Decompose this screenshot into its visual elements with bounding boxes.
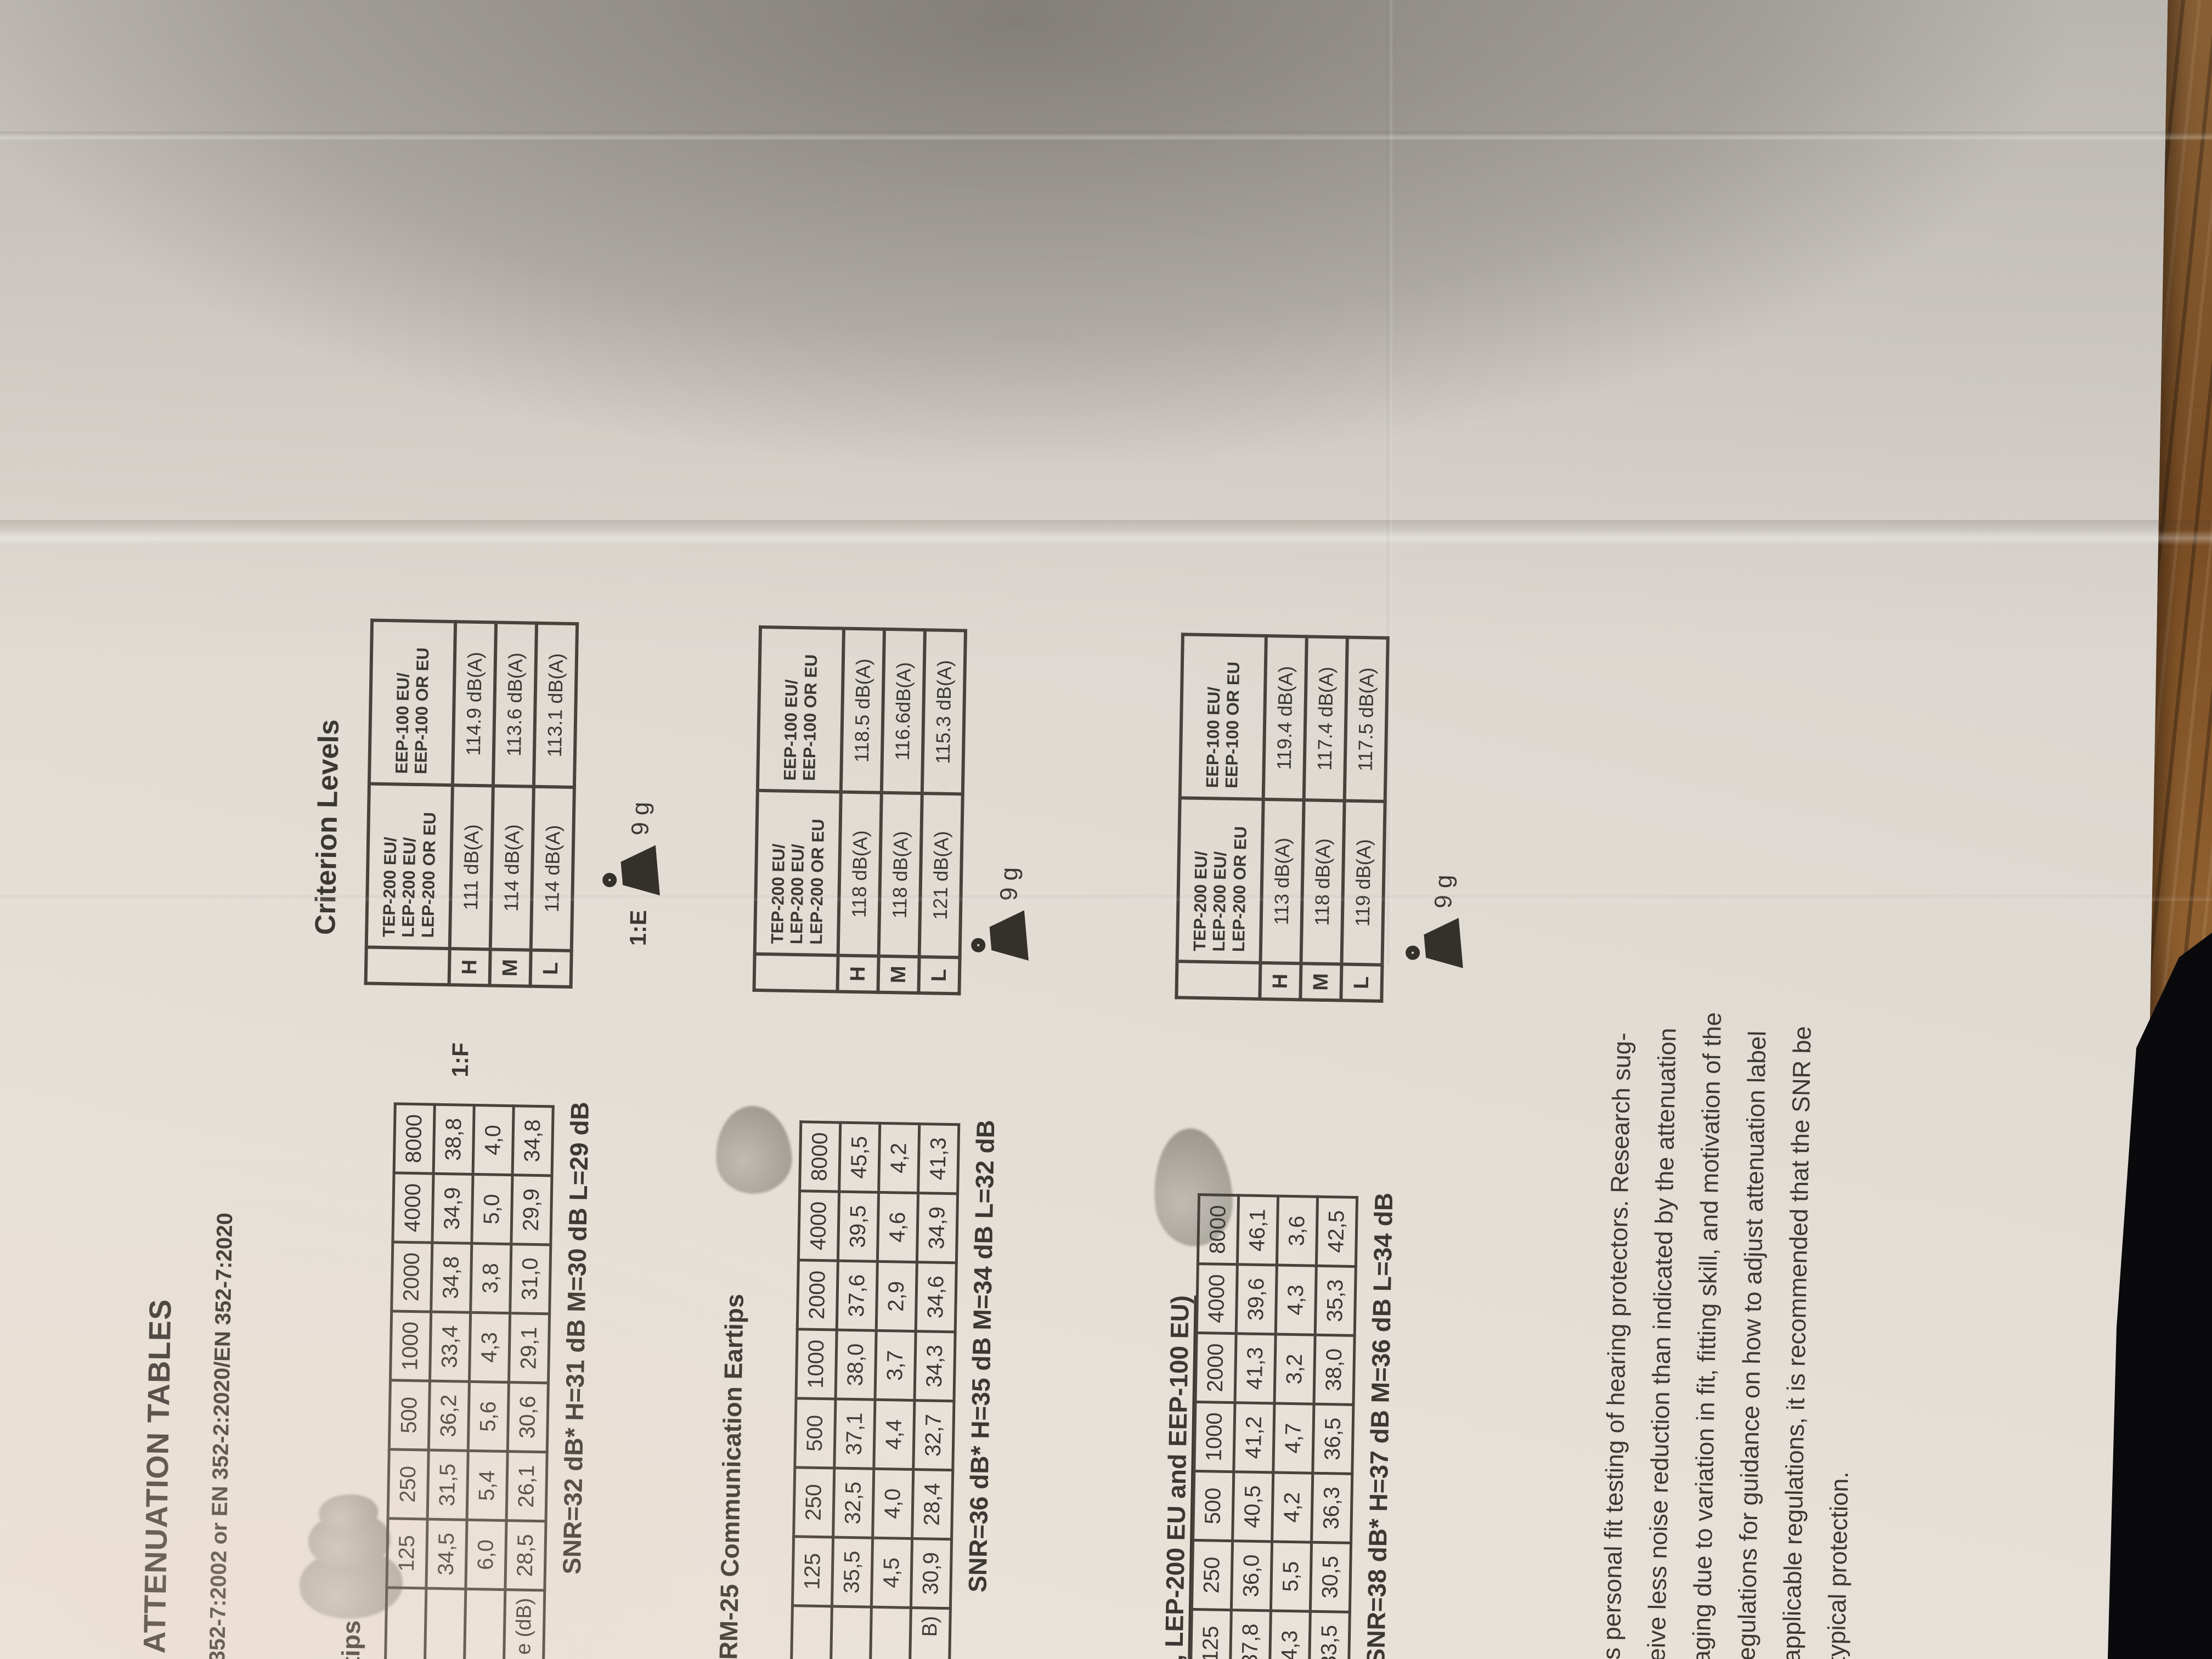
rotated-document-page: ATTENUATION TABLES 352-7:2002 or EN 352-… (0, 0, 2212, 1659)
weight-row-3: 9 g (1404, 874, 1462, 971)
frequency-header-cell: 250 (1192, 1540, 1232, 1610)
attenuation-value-cell: 40,5 (1233, 1472, 1273, 1542)
section2-title: GRM-25 Communication Eartips (713, 1294, 749, 1659)
attenuation-value-cell: 26,1 (506, 1452, 547, 1521)
attenuation-value-cell: 32,5 (833, 1468, 874, 1538)
attenuation-value-cell: 4,2 (879, 1123, 919, 1193)
weight-row-2: 9 g (970, 867, 1028, 964)
criterion-column-header: TEP-200 EU/ LEP-200 EU/ LEP-200 OR EU (755, 791, 841, 956)
attenuation-value-cell: 4,3 (469, 1312, 510, 1382)
figure-label-1F: 1:F (447, 1042, 474, 1077)
attenuation-value-cell: 34,9 (917, 1193, 957, 1263)
weight-body (988, 910, 1029, 963)
attenuation-value-cell: 4,5 (871, 1538, 912, 1607)
criterion-row-label: L (1341, 964, 1382, 1001)
attenuation-value-cell: 33,5 (1309, 1611, 1350, 1659)
attenuation-value-cell: 35,3 (1315, 1266, 1356, 1335)
attenuation-value-cell: 5,5 (1271, 1542, 1311, 1611)
attenuation-value-cell: 30,6 (507, 1383, 548, 1452)
frequency-header-cell: 4000 (1197, 1263, 1237, 1333)
attenuation-value-cell: 3,7 (875, 1330, 916, 1400)
criterion-row-label: H (1260, 963, 1301, 1000)
attenuation-value-cell: 30,9 (911, 1538, 951, 1608)
attenuation-value-cell: 29,9 (511, 1175, 552, 1245)
figure-label-1E: 1:E (625, 910, 657, 946)
weight-body (1423, 918, 1463, 971)
criterion-table-3: TEP-200 EU/ LEP-200 EU/ LEP-200 OR EUEEP… (1175, 633, 1390, 1003)
attenuation-row-label-cell (385, 1588, 426, 1659)
attenuation-row-label-cell: e (dB) (503, 1590, 544, 1659)
criterion-corner-cell (1176, 961, 1260, 999)
criterion-row-label: L (918, 957, 960, 994)
criterion-table-2: TEP-200 EU/ LEP-200 EU/ LEP-200 OR EUEEP… (752, 625, 967, 996)
attenuation-value-cell: 6,0 (466, 1520, 506, 1589)
attenuation-value-cell: 45,5 (839, 1122, 880, 1192)
criterion-value-cell: 117.4 dB(A) (1304, 636, 1347, 800)
criterion-table-1: TEP-200 EU/ LEP-200 EU/ LEP-200 OR EUEEP… (364, 618, 579, 989)
attenuation-row-label-cell (830, 1606, 871, 1659)
attenuation-value-cell: 34,9 (432, 1173, 473, 1243)
attenuation-value-cell: 4,0 (873, 1469, 913, 1538)
body-paragraph: nds personal fit testing of hearing prot… (1589, 425, 1881, 1659)
frequency-header-cell: 500 (1193, 1471, 1234, 1541)
criterion-row-label: H (837, 955, 878, 992)
frequency-header-cell: 8000 (394, 1104, 435, 1173)
frequency-header-cell: 8000 (1198, 1195, 1238, 1265)
attenuation-value-cell: 38,8 (433, 1104, 474, 1174)
attenuation-value-cell: 41,3 (1235, 1334, 1276, 1403)
attenuation-value-cell: 36,2 (428, 1381, 469, 1451)
frequency-header-cell: 2000 (1195, 1333, 1236, 1402)
page-title: ATTENUATION TABLES (136, 1299, 178, 1654)
weight-icon (600, 845, 660, 900)
attenuation-value-cell: 42,5 (1316, 1197, 1357, 1266)
frequency-header-cell: 1000 (796, 1329, 837, 1399)
weight-handle-ring (1405, 945, 1420, 961)
attenuation-value-cell: 32,7 (913, 1401, 954, 1470)
weight-handle-ring (602, 872, 617, 888)
attenuation-value-cell: 3,8 (471, 1243, 511, 1313)
attenuation-value-cell: 5,6 (468, 1381, 509, 1451)
attenuation-row-label-cell (424, 1588, 465, 1659)
criterion-value-cell: 111 dB(A) (450, 785, 493, 949)
attenuation-value-cell: 41,3 (918, 1124, 959, 1194)
criterion-value-cell: 118 dB(A) (1301, 800, 1344, 964)
weight-icon (968, 910, 1029, 966)
paper-crease (1387, 0, 1392, 966)
attenuation-row-label-cell (464, 1589, 505, 1659)
criterion-value-cell: 119.4 dB(A) (1263, 636, 1307, 800)
criterion-column-header: TEP-200 EU/ LEP-200 EU/ LEP-200 OR EU (1177, 798, 1263, 963)
criterion-value-cell: 115.3 dB(A) (922, 630, 966, 794)
attenuation-value-cell: 35,5 (832, 1537, 872, 1607)
attenuation-value-cell: 34,8 (431, 1243, 472, 1312)
attenuation-table-2: 125250500100020004000800035,532,537,138,… (789, 1120, 960, 1659)
attenuation-value-cell: 46,1 (1237, 1195, 1278, 1265)
criterion-value-cell: 118 dB(A) (838, 792, 882, 956)
criterion-value-cell: 119 dB(A) (1341, 801, 1385, 965)
paper-crease (0, 895, 2212, 901)
attenuation-value-cell: 4,2 (1272, 1472, 1313, 1542)
frequency-header-cell: 250 (794, 1468, 834, 1537)
frequency-header-cell: 125 (792, 1537, 833, 1606)
attenuation-row-label-cell (870, 1607, 911, 1659)
criterion-value-cell: 116.6dB(A) (882, 629, 925, 793)
attenuation-value-cell: 30,5 (1310, 1542, 1351, 1612)
weight-icon (1403, 918, 1463, 973)
frequency-header-cell: 1000 (390, 1311, 431, 1381)
attenuation-row-label-cell (791, 1606, 832, 1659)
criterion-row-label: M (1300, 963, 1341, 1000)
attenuation-value-cell: 34,6 (916, 1262, 956, 1332)
criterion-value-cell: 118.5 dB(A) (841, 629, 884, 793)
frequency-header-cell: 8000 (800, 1122, 840, 1192)
frequency-header-cell: 250 (388, 1449, 428, 1519)
attenuation-value-cell: 2,9 (876, 1261, 917, 1331)
weight-row-1: 1:E 9 g (601, 801, 659, 946)
criterion-value-cell: 113.6 dB(A) (493, 622, 537, 786)
attenuation-value-cell: 34,8 (512, 1106, 553, 1176)
criterion-column-header: EEP-100 EU/ EEP-100 OR EU (369, 620, 455, 786)
attenuation-value-cell: 34,3 (915, 1331, 955, 1401)
attenuation-value-cell: 5,0 (472, 1174, 512, 1244)
attenuation-value-cell: 33,4 (430, 1312, 470, 1381)
frequency-header-cell: 2000 (797, 1260, 838, 1330)
criterion-column-header: EEP-100 EU/ EEP-100 OR EU (1180, 634, 1266, 799)
attenuation-value-cell: 36,5 (1313, 1404, 1353, 1474)
weight-handle-ring (970, 938, 986, 953)
attenuation-value-cell: 38,0 (1314, 1335, 1355, 1404)
criterion-corner-cell (754, 954, 838, 992)
frequency-header-cell: 4000 (798, 1191, 839, 1261)
attenuation-value-cell: 37,8 (1230, 1610, 1271, 1659)
criterion-value-cell: 113.1 dB(A) (534, 623, 577, 787)
attenuation-value-cell: 4,6 (877, 1192, 918, 1262)
weight-grams-label: 9 g (627, 802, 659, 836)
attenuation-value-cell: 3,6 (1277, 1196, 1317, 1266)
frequency-header-cell: 125 (387, 1519, 427, 1588)
criterion-row-label: M (490, 949, 531, 986)
criterion-row-label: M (878, 956, 919, 993)
criterion-value-cell: 114 dB(A) (490, 786, 534, 950)
attenuation-value-cell: 37,6 (837, 1261, 877, 1330)
criterion-value-cell: 118 dB(A) (879, 793, 922, 957)
frequency-header-cell: 4000 (393, 1173, 433, 1243)
attenuation-value-cell: 38,0 (836, 1330, 876, 1400)
weight-body (619, 845, 660, 898)
criterion-levels-heading: Criterion Levels (309, 719, 346, 935)
criterion-value-cell: 114.9 dB(A) (453, 622, 496, 786)
section3-title-fragment: U, LEP-200 EU and EEP-100 EU) (1159, 1295, 1195, 1659)
frequency-header-cell: 500 (389, 1380, 430, 1450)
criterion-corner-cell (366, 947, 450, 985)
criterion-column-header: EEP-100 EU/ EEP-100 OR EU (758, 627, 844, 792)
criterion-value-cell: 121 dB(A) (919, 793, 963, 957)
photo-of-document: ATTENUATION TABLES 352-7:2002 or EN 352-… (0, 0, 2212, 1659)
attenuation-value-cell: 4,3 (1269, 1611, 1310, 1659)
criterion-row-label: H (449, 949, 490, 985)
criterion-value-cell: 114 dB(A) (531, 787, 574, 951)
attenuation-value-cell: 36,3 (1312, 1473, 1352, 1543)
frequency-header-cell: 1000 (1194, 1402, 1235, 1471)
attenuation-value-cell: 31,5 (427, 1450, 468, 1520)
section1-title-fragment: tips (336, 1620, 366, 1659)
attenuation-value-cell: 31,0 (510, 1244, 551, 1314)
frequency-header-cell: 500 (795, 1398, 836, 1468)
attenuation-value-cell: 37,1 (834, 1399, 875, 1469)
attenuation-value-cell: 39,5 (838, 1192, 878, 1261)
attenuation-value-cell: 4,3 (1276, 1265, 1316, 1335)
frequency-header-cell: 125 (1190, 1609, 1231, 1659)
criterion-row-label: L (531, 950, 572, 987)
criterion-value-cell: 113 dB(A) (1260, 799, 1304, 963)
attenuation-value-cell: 28,5 (505, 1521, 546, 1590)
attenuation-table-1: 125250500100020004000800034,531,536,233,… (383, 1102, 555, 1659)
attenuation-value-cell: 4,7 (1273, 1403, 1314, 1473)
weight-grams-label: 9 g (1430, 874, 1462, 909)
attenuation-value-cell: 34,5 (426, 1519, 467, 1589)
attenuation-value-cell: 3,2 (1274, 1334, 1315, 1404)
attenuation-value-cell: 29,1 (509, 1313, 549, 1383)
attenuation-value-cell: 4,4 (874, 1400, 915, 1469)
attenuation-value-cell: 5,4 (467, 1451, 507, 1520)
paper-crease (0, 520, 2212, 545)
attenuation-value-cell: 36,0 (1231, 1541, 1272, 1611)
paper-crease (0, 132, 2212, 140)
attenuation-table-3: 125250500100020004000800037,836,040,541,… (1187, 1193, 1358, 1659)
attenuation-row-label-cell: B) (909, 1607, 950, 1659)
attenuation-value-cell: 4,0 (473, 1105, 513, 1175)
frequency-header-cell: 2000 (392, 1242, 432, 1312)
attenuation-value-cell: 28,4 (912, 1470, 953, 1539)
criterion-value-cell: 117.5 dB(A) (1345, 637, 1388, 802)
criterion-column-header: TEP-200 EU/ LEP-200 EU/ LEP-200 OR EU (366, 784, 453, 949)
attenuation-value-cell: 39,6 (1236, 1265, 1277, 1334)
attenuation-value-cell: 41,2 (1234, 1403, 1274, 1472)
